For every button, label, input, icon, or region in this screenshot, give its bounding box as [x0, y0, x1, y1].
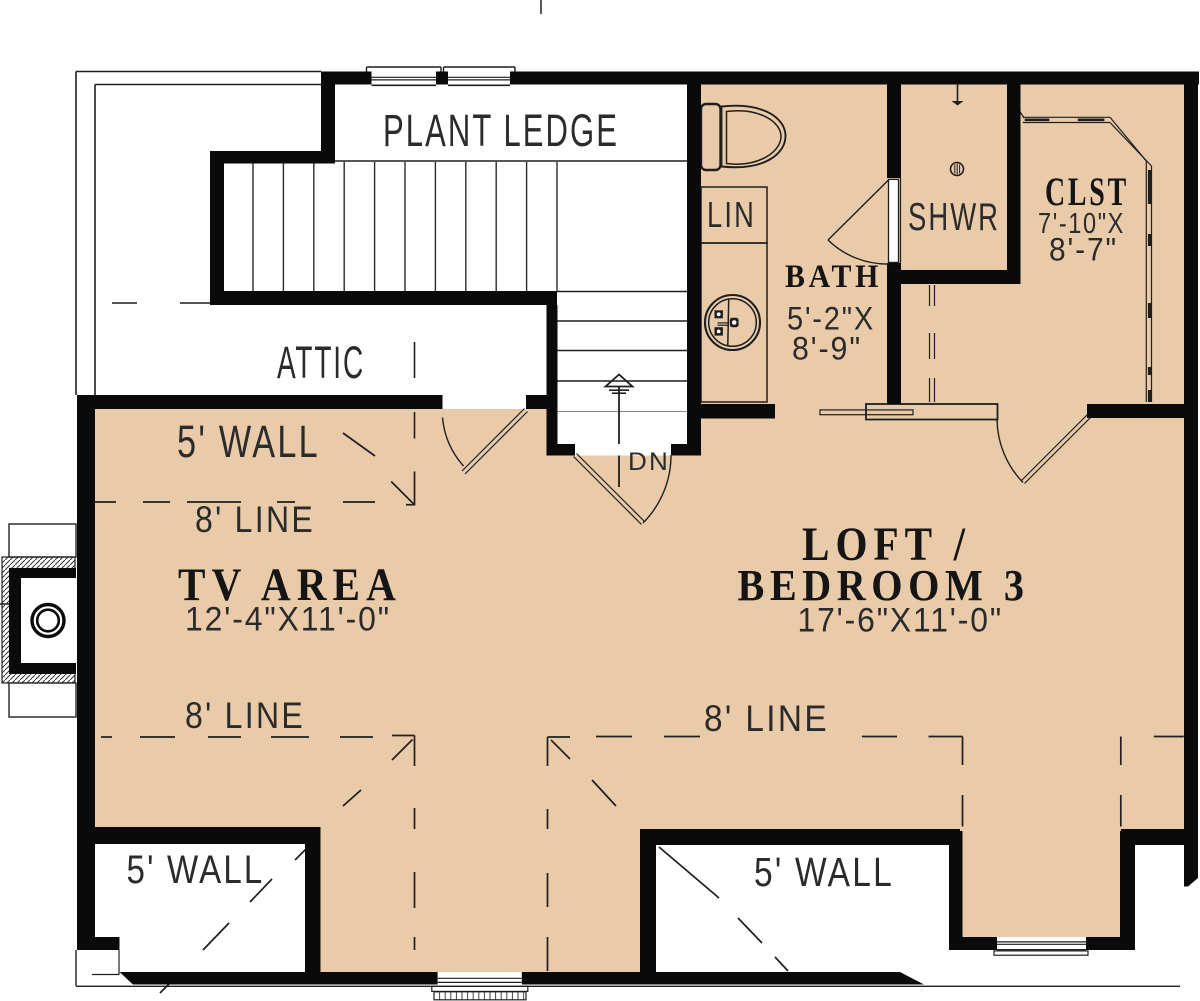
svg-text:12'-4"X11'-0": 12'-4"X11'-0"	[185, 601, 391, 639]
svg-text:DN: DN	[628, 449, 670, 476]
svg-text:ATTIC: ATTIC	[277, 338, 365, 389]
svg-text:8' LINE: 8' LINE	[704, 697, 829, 739]
svg-text:5' WALL: 5' WALL	[127, 848, 265, 892]
svg-text:SHWR: SHWR	[908, 196, 1000, 239]
svg-text:8' LINE: 8' LINE	[195, 498, 315, 540]
svg-text:BATH: BATH	[785, 259, 882, 295]
svg-text:5' WALL: 5' WALL	[177, 417, 320, 468]
svg-text:5' WALL: 5' WALL	[754, 848, 894, 895]
svg-text:17'-6"X11'-0": 17'-6"X11'-0"	[798, 602, 1004, 640]
svg-text:8' LINE: 8' LINE	[185, 694, 305, 736]
svg-text:8'-9": 8'-9"	[792, 331, 862, 367]
svg-text:LIN: LIN	[707, 195, 756, 236]
svg-text:PLANT LEDGE: PLANT LEDGE	[383, 106, 619, 157]
svg-text:8'-7": 8'-7"	[1049, 232, 1118, 268]
